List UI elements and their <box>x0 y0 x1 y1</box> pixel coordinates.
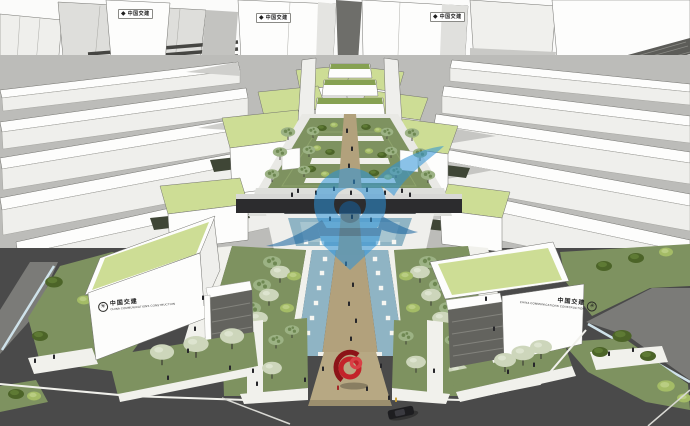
tower-sign-right: ◆ 中国交建 <box>430 12 465 22</box>
tower-sign-center-text: 中国交建 <box>266 16 288 21</box>
scene-svg <box>0 0 690 426</box>
front-right-building <box>430 242 584 402</box>
tower-sign-center: ◆ 中国交建 <box>256 13 291 23</box>
cccc-logo-icon: ◆ <box>121 11 126 17</box>
cccc-logo-icon: ◆ <box>259 15 264 21</box>
rendering-canvas: ◆ 中国交建 ◆ 中国交建 ◆ 中国交建 ✳ 中国交建 CHINA COMMUN… <box>0 0 690 426</box>
company-emblem-icon: ✳ <box>98 302 109 313</box>
tower-sign-left-text: 中国交建 <box>128 12 150 17</box>
cccc-logo-icon: ◆ <box>433 14 438 20</box>
tower-sign-left: ◆ 中国交建 <box>118 9 153 19</box>
company-emblem-icon: ✳ <box>586 301 597 312</box>
terrace-building <box>298 58 402 122</box>
tower-sign-right-text: 中国交建 <box>440 15 462 20</box>
